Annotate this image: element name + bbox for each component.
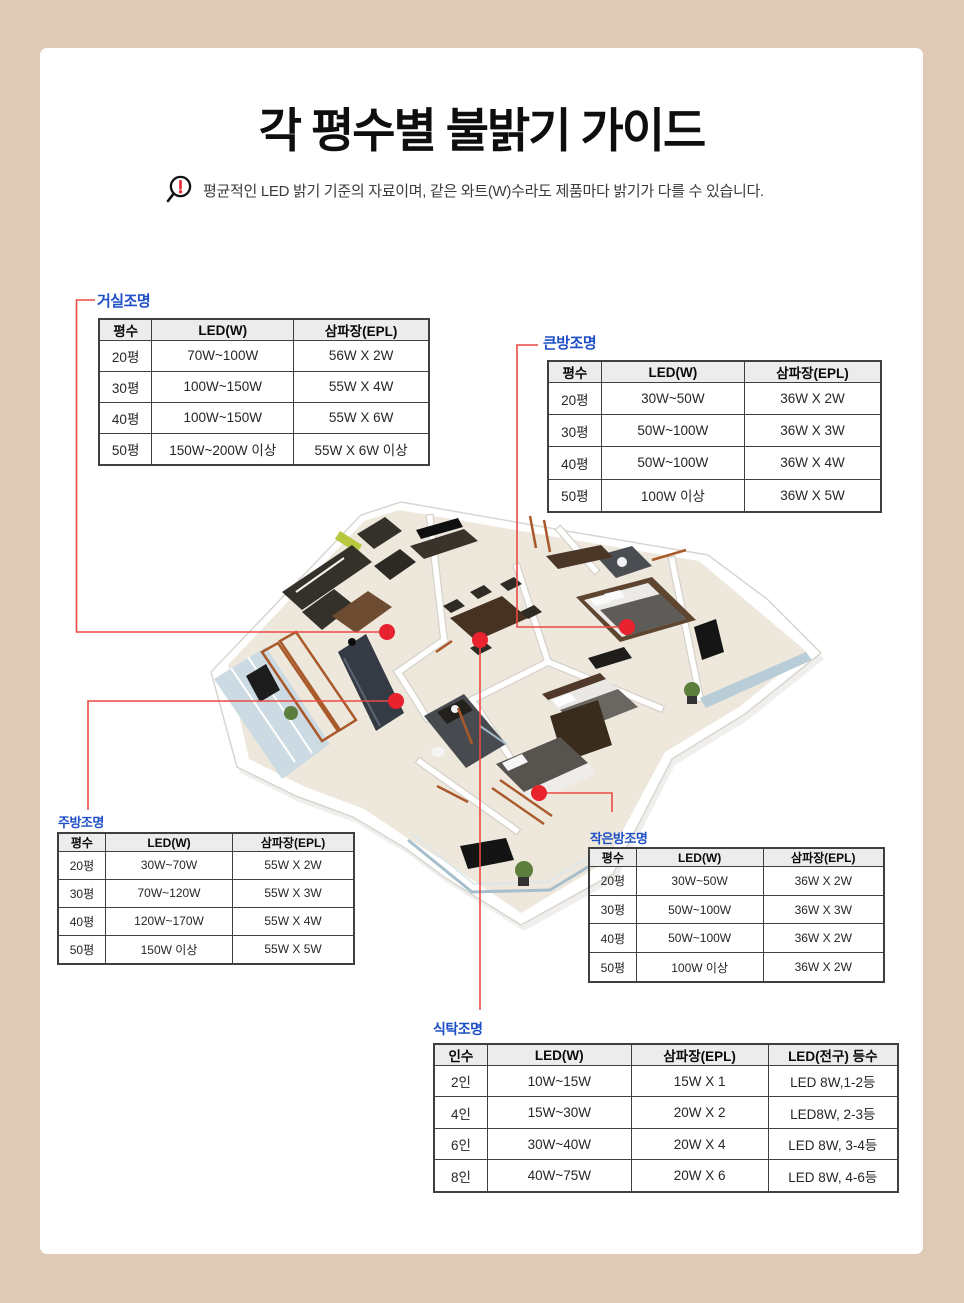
table-cell: 36W X 2W [744,383,881,415]
column-header: 삼파장(EPL) [631,1044,768,1066]
table-cell: 36W X 5W [744,479,881,512]
table-row: 50평100W 이상36W X 2W [589,953,884,982]
small-bedroom-table: 평수LED(W)삼파장(EPL)20평30W~50W36W X 2W30평50W… [588,847,885,983]
column-header: LED(W) [152,319,294,341]
table-cell: 40W~75W [487,1160,631,1192]
column-header: 인수 [434,1044,487,1066]
table-row: 50평150W~200W 이상55W X 6W 이상 [99,433,429,465]
table-cell: 8인 [434,1160,487,1192]
table-cell: 40평 [99,402,152,433]
table-cell: 50W~100W [636,924,763,953]
section-label-living-room: 거실조명 [97,290,150,311]
table-cell: 55W X 4W [233,907,354,935]
column-header: 삼파장(EPL) [294,319,429,341]
column-header: 삼파장(EPL) [233,833,354,852]
table-cell: 4인 [434,1097,487,1128]
table-row: 2인10W~15W15W X 1LED 8W,1-2등 [434,1066,898,1097]
column-header: 평수 [589,848,636,867]
column-header: 평수 [58,833,105,852]
table-cell: 30평 [99,371,152,402]
column-header: LED(W) [105,833,232,852]
table-cell: 30W~70W [105,852,232,880]
table-kitchen: 평수LED(W)삼파장(EPL)20평30W~70W55W X 2W30평70W… [57,832,355,965]
page-content: 각 평수별 불밝기 가이드 평균적인 LED 밝기 기준의 자료이며, 같은 와… [40,48,923,1254]
table-cell: 40평 [58,907,105,935]
table-cell: 30평 [548,415,601,447]
table-cell: 100W~150W [152,402,294,433]
table-small-bedroom: 평수LED(W)삼파장(EPL)20평30W~50W36W X 2W30평50W… [588,847,885,983]
table-cell: 6인 [434,1128,487,1159]
notice-text: 평균적인 LED 밝기 기준의 자료이며, 같은 와트(W)수라도 제품마다 밝… [203,180,764,201]
magnifier-exclamation-icon [166,174,194,207]
table-cell: 100W~150W [152,371,294,402]
column-header: LED(W) [601,361,744,383]
table-cell: 56W X 2W [294,341,429,372]
table-cell: 36W X 3W [763,895,884,924]
table-cell: 30평 [58,879,105,907]
column-header: 삼파장(EPL) [744,361,881,383]
table-cell: LED 8W, 4-6등 [768,1160,898,1192]
table-row: 20평30W~50W36W X 2W [589,867,884,896]
column-header: LED(W) [487,1044,631,1066]
table-row: 50평150W 이상55W X 5W [58,935,354,964]
table-cell: 20평 [589,867,636,896]
column-header: 평수 [548,361,601,383]
table-row: 30평50W~100W36W X 3W [589,895,884,924]
table-row: 20평70W~100W56W X 2W [99,341,429,372]
table-cell: 40평 [589,924,636,953]
table-cell: 20평 [548,383,601,415]
table-cell: 150W~200W 이상 [152,433,294,465]
table-cell: 70W~120W [105,879,232,907]
table-cell: 50평 [548,479,601,512]
table-cell: 50W~100W [601,447,744,479]
table-cell: 30평 [589,895,636,924]
table-cell: 70W~100W [152,341,294,372]
table-cell: 20W X 4 [631,1128,768,1159]
table-cell: 120W~170W [105,907,232,935]
table-cell: 50W~100W [601,415,744,447]
table-cell: 100W 이상 [636,953,763,982]
dining-table-table: 인수LED(W)삼파장(EPL)LED(전구) 등수2인10W~15W15W X… [433,1043,899,1193]
table-cell: 20W X 2 [631,1097,768,1128]
table-cell: 55W X 6W 이상 [294,433,429,465]
table-cell: 30W~50W [636,867,763,896]
table-dining-table: 인수LED(W)삼파장(EPL)LED(전구) 등수2인10W~15W15W X… [433,1043,899,1193]
table-row: 40평50W~100W36W X 4W [548,447,881,479]
table-master-bedroom: 평수LED(W)삼파장(EPL)20평30W~50W36W X 2W30평50W… [547,360,882,513]
section-label-master-bedroom: 큰방조명 [543,332,596,353]
table-cell: 150W 이상 [105,935,232,964]
table-cell: 15W X 1 [631,1066,768,1097]
table-cell: 100W 이상 [601,479,744,512]
notice: 평균적인 LED 밝기 기준의 자료이며, 같은 와트(W)수라도 제품마다 밝… [166,174,764,207]
column-header: 삼파장(EPL) [763,848,884,867]
table-cell: LED 8W,1-2등 [768,1066,898,1097]
table-cell: 20평 [99,341,152,372]
table-cell: 50평 [589,953,636,982]
table-row: 8인40W~75W20W X 6LED 8W, 4-6등 [434,1160,898,1192]
table-cell: 10W~15W [487,1066,631,1097]
table-cell: 40평 [548,447,601,479]
column-header: LED(W) [636,848,763,867]
table-cell: 36W X 2W [763,953,884,982]
column-header: 평수 [99,319,152,341]
kitchen-table: 평수LED(W)삼파장(EPL)20평30W~70W55W X 2W30평70W… [57,832,355,965]
living-room-table: 평수LED(W)삼파장(EPL)20평70W~100W56W X 2W30평10… [98,318,430,466]
master-bedroom-table: 평수LED(W)삼파장(EPL)20평30W~50W36W X 2W30평50W… [547,360,882,513]
table-cell: 55W X 4W [294,371,429,402]
table-cell: 20평 [58,852,105,880]
table-cell: 50평 [58,935,105,964]
section-label-kitchen: 주방조명 [58,812,104,831]
table-cell: 30W~50W [601,383,744,415]
table-row: 40평50W~100W36W X 2W [589,924,884,953]
table-cell: 36W X 4W [744,447,881,479]
table-row: 40평120W~170W55W X 4W [58,907,354,935]
table-cell: 55W X 2W [233,852,354,880]
table-row: 4인15W~30W20W X 2LED8W, 2-3등 [434,1097,898,1128]
table-row: 20평30W~70W55W X 2W [58,852,354,880]
table-row: 40평100W~150W55W X 6W [99,402,429,433]
section-label-dining-table: 식탁조명 [433,1019,483,1039]
table-cell: 55W X 5W [233,935,354,964]
infographic-page: { "page": { "title": "각 평수별 불밝기 가이드", "n… [0,0,964,1303]
table-living-room: 평수LED(W)삼파장(EPL)20평70W~100W56W X 2W30평10… [98,318,430,466]
table-row: 50평100W 이상36W X 5W [548,479,881,512]
table-row: 30평50W~100W36W X 3W [548,415,881,447]
column-header: LED(전구) 등수 [768,1044,898,1066]
table-cell: 36W X 2W [763,867,884,896]
table-cell: 55W X 3W [233,879,354,907]
table-cell: LED 8W, 3-4등 [768,1128,898,1159]
table-cell: 36W X 2W [763,924,884,953]
table-cell: LED8W, 2-3등 [768,1097,898,1128]
plant [284,706,298,720]
table-row: 30평70W~120W55W X 3W [58,879,354,907]
page-title: 각 평수별 불밝기 가이드 [40,92,923,161]
table-row: 30평100W~150W55W X 4W [99,371,429,402]
table-cell: 30W~40W [487,1128,631,1159]
table-cell: 36W X 3W [744,415,881,447]
table-cell: 2인 [434,1066,487,1097]
table-row: 20평30W~50W36W X 2W [548,383,881,415]
table-cell: 50평 [99,433,152,465]
table-cell: 15W~30W [487,1097,631,1128]
table-cell: 50W~100W [636,895,763,924]
table-row: 6인30W~40W20W X 4LED 8W, 3-4등 [434,1128,898,1159]
table-cell: 55W X 6W [294,402,429,433]
section-label-small-bedroom: 작은방조명 [590,828,647,847]
table-cell: 20W X 6 [631,1160,768,1192]
